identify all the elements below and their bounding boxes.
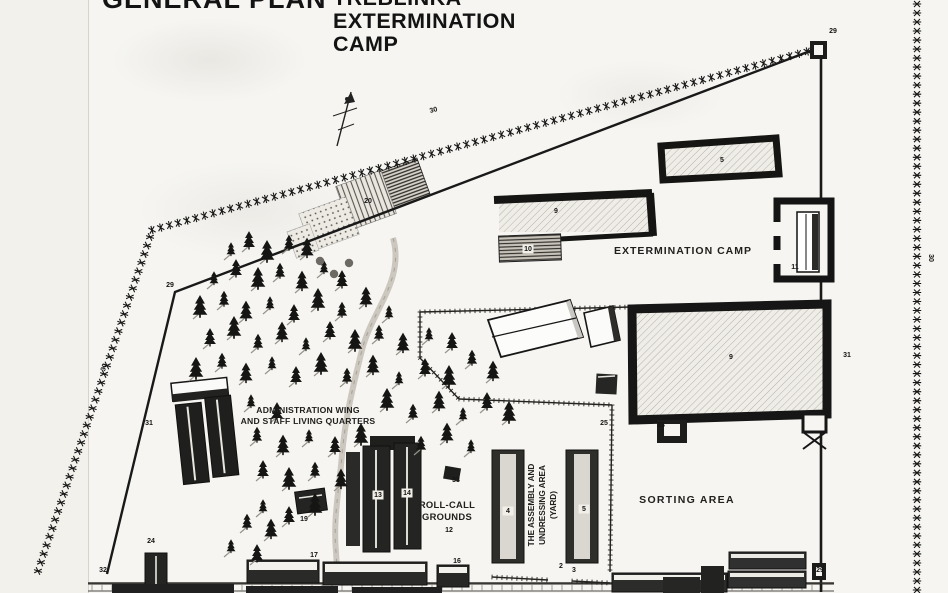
tree-shadow <box>406 417 413 423</box>
fence-barb-icon <box>913 515 921 521</box>
page-title-general-plan: GENERAL PLAN <box>102 0 327 15</box>
fence-barb-icon <box>489 132 497 142</box>
tree-icon <box>481 392 493 410</box>
tree-icon <box>264 519 277 540</box>
fence-barb-icon <box>913 488 921 494</box>
fence-barb-icon <box>79 430 89 438</box>
tree-icon <box>486 361 499 382</box>
platform-building <box>246 586 338 593</box>
fence-barb-icon <box>913 290 921 296</box>
fence-barb-icon <box>913 109 921 115</box>
fence-barb-icon <box>428 149 436 159</box>
fence-barb-icon <box>913 587 921 593</box>
tree-icon <box>239 301 252 322</box>
tree-icon <box>380 388 395 411</box>
tree-shadow <box>456 419 463 425</box>
fence-barb-icon <box>913 569 921 575</box>
map-number-label: 31 <box>145 420 153 427</box>
building-9-wall <box>560 234 653 239</box>
building-11-notch <box>770 250 782 264</box>
fence-barb-icon <box>913 578 921 584</box>
enclosure-gate-opening <box>664 424 680 436</box>
tree-icon <box>442 365 457 388</box>
fence-barb-icon <box>332 175 340 185</box>
fence-barb-icon <box>690 77 698 87</box>
fence-barb-icon <box>646 89 654 99</box>
fence-barb-icon <box>288 187 296 197</box>
tree-icon <box>242 514 252 530</box>
internal-fence <box>492 577 548 580</box>
fence-barb-icon <box>585 106 593 116</box>
tree-shadow <box>308 475 315 481</box>
fence-barb-icon <box>913 425 921 431</box>
map-number-label: 25 <box>600 420 608 427</box>
camp-map: EXTERMINATION CAMPADMINISTRATION WINGAND… <box>0 0 948 593</box>
fence-barb-icon <box>913 118 921 124</box>
fence-barb-icon <box>742 63 750 73</box>
fence-barb-icon <box>53 507 63 515</box>
tree-shadow <box>224 551 231 557</box>
fence-barb-icon <box>524 123 532 133</box>
fence-barb-icon <box>913 371 921 377</box>
tree-icon <box>282 467 297 490</box>
fence-barb-icon <box>913 100 921 106</box>
fence-barb-icon <box>913 163 921 169</box>
tree-icon <box>334 469 347 490</box>
tree-icon <box>408 404 418 420</box>
fence-barb-icon <box>183 216 191 226</box>
fence-barb-icon <box>913 235 921 241</box>
platform-building <box>663 577 700 593</box>
fence-barb-icon <box>637 92 645 102</box>
area-label-yard: (YARD) <box>549 491 558 519</box>
fence-barb-icon <box>913 244 921 250</box>
tree-icon <box>275 263 285 279</box>
map-number-label: 30 <box>100 363 109 373</box>
fence-barb-icon <box>913 542 921 548</box>
tree-icon <box>251 544 263 562</box>
tree-icon <box>329 436 341 454</box>
fence-barb-icon <box>664 85 672 95</box>
fence-barb-icon <box>620 97 628 107</box>
map-number-label: 3 <box>572 567 576 574</box>
fence-barb-icon <box>725 68 733 78</box>
fence-barb-icon <box>480 135 488 145</box>
north-arrow-icon <box>345 97 349 101</box>
tree-icon <box>366 355 379 376</box>
fence-barb-icon <box>498 130 506 140</box>
area-label-sorting-area: SORTING AREA <box>639 494 735 506</box>
fence-barb-icon <box>56 498 66 506</box>
fence-barb-icon <box>262 194 270 204</box>
fence-barb-icon <box>209 208 217 218</box>
fence-barb-icon <box>913 308 921 314</box>
tree-icon <box>324 321 336 339</box>
fence-barb-icon <box>515 125 523 135</box>
fence-barb-icon <box>913 506 921 512</box>
fence-barb-icon <box>111 336 121 344</box>
map-number-label: 20 <box>364 198 372 205</box>
tree-shadow <box>302 441 309 447</box>
area-label-roll-call: ROLL-CALL <box>419 499 475 510</box>
tree-icon <box>311 288 326 311</box>
fence-barb-icon <box>200 211 208 221</box>
fence-barb-icon <box>913 145 921 151</box>
tree-icon <box>283 506 295 524</box>
fence-barb-icon <box>119 310 129 318</box>
fence-barb-icon <box>913 190 921 196</box>
tree-icon <box>348 329 363 352</box>
fence-barb-icon <box>913 362 921 368</box>
tree-shadow <box>317 272 324 278</box>
fence-barb-icon <box>125 293 135 301</box>
tree-shadow <box>217 304 224 310</box>
fence-barb-icon <box>139 250 149 258</box>
fence-barb-icon <box>913 398 921 404</box>
tree-icon <box>305 429 314 443</box>
platform-building <box>701 566 724 593</box>
long-barrack-17-roof <box>325 564 425 572</box>
map-number-label: 11 <box>791 264 799 271</box>
tree-shadow <box>256 511 263 517</box>
map-number-label: 29 <box>166 282 174 289</box>
bush-icon <box>316 257 324 265</box>
tree-shadow <box>464 451 471 457</box>
fence-barb-icon <box>297 185 305 195</box>
fence-barb-icon <box>45 532 55 540</box>
tree-icon <box>189 357 204 380</box>
fence-barb-icon <box>913 82 921 88</box>
map-number-label: 32 <box>99 567 107 574</box>
fence-barb-icon <box>751 61 759 71</box>
tree-shadow <box>251 347 258 353</box>
building-11-notch <box>770 222 782 236</box>
map-number-label: 19 <box>300 516 308 523</box>
fence-barb-icon <box>532 120 540 130</box>
map-number-label: 9 <box>729 354 733 361</box>
small-hut-ridge <box>598 376 615 377</box>
tree-icon <box>467 439 476 453</box>
north-arrow-icon <box>338 124 354 130</box>
fence-barb-icon <box>913 181 921 187</box>
fence-barb-icon <box>142 241 152 249</box>
fence-barb-icon <box>913 253 921 259</box>
area-label-extermination-camp: EXTERMINATION CAMP <box>614 245 752 257</box>
fence-barb-icon <box>550 116 558 126</box>
fence-barb-icon <box>913 136 921 142</box>
fence-barb-icon <box>913 55 921 61</box>
storage-barrack-roof <box>730 573 804 577</box>
tree-shadow <box>382 317 389 323</box>
fence-barb-icon <box>576 108 584 118</box>
map-number-label: 5 <box>720 157 724 164</box>
fence-barb-icon <box>76 438 86 446</box>
fence-barb-icon <box>913 326 921 332</box>
fence-barb-icon <box>463 139 471 149</box>
fence-barb-icon <box>270 192 278 202</box>
fence-barb-icon <box>913 560 921 566</box>
fence-barb-icon <box>913 199 921 205</box>
fence-barb-icon <box>419 151 427 161</box>
burial-pit-enclosure <box>632 304 827 420</box>
tree-shadow <box>215 366 222 372</box>
fence-barb-icon <box>47 524 57 532</box>
fence-barb-icon <box>68 464 78 472</box>
map-number-label: 4 <box>506 508 510 515</box>
fence-barb-icon <box>122 301 132 309</box>
map-number-label: 33 <box>657 422 665 429</box>
area-label-undressing-area: UNDRESSING AREA <box>538 465 547 545</box>
fence-barb-icon <box>192 213 200 223</box>
tree-shadow <box>340 381 347 387</box>
map-number-label: 29 <box>829 28 837 35</box>
tree-icon <box>385 305 394 319</box>
tree-shadow <box>335 315 342 321</box>
fence-barb-icon <box>62 481 72 489</box>
tree-icon <box>310 462 320 478</box>
fence-barb-icon <box>611 99 619 109</box>
fence-barb-icon <box>602 101 610 111</box>
building-16-roof <box>439 567 467 573</box>
tree-icon <box>359 287 372 308</box>
watchtower-icon <box>803 414 826 432</box>
tree-icon <box>253 334 263 350</box>
tree-icon <box>259 499 268 513</box>
building-11-shade <box>812 214 818 270</box>
map-number-label: 13 <box>374 492 382 499</box>
tree-icon <box>342 368 352 384</box>
area-label-grounds: GROUNDS <box>422 511 472 522</box>
fence-barb-icon <box>253 197 261 207</box>
fence-barb-icon <box>655 87 663 97</box>
treblinka-camp-plan-page: EXTERMINATION CAMPADMINISTRATION WINGAND… <box>0 0 948 593</box>
tree-icon <box>227 316 242 339</box>
fence-barb-icon <box>157 223 165 233</box>
fence-barb-icon <box>59 490 69 498</box>
fence-barb-icon <box>65 473 75 481</box>
fence-barb-icon <box>913 389 921 395</box>
fence-barb-icon <box>116 318 126 326</box>
tree-shadow <box>240 527 247 533</box>
fence-barb-icon <box>913 335 921 341</box>
fence-barb-icon <box>913 73 921 79</box>
tree-icon <box>337 302 347 318</box>
fence-barb-icon <box>913 10 921 16</box>
map-number-label: 33 <box>452 477 460 484</box>
fence-barb-icon <box>454 142 462 152</box>
fence-barb-icon <box>131 276 141 284</box>
map-number-label: 31 <box>843 352 851 359</box>
fence-barb-icon <box>235 201 243 211</box>
tree-icon <box>260 240 275 263</box>
fence-barb-icon <box>913 217 921 223</box>
tree-icon <box>247 394 256 408</box>
map-number-label: 30 <box>429 106 438 115</box>
tree-icon <box>268 356 277 370</box>
tree-shadow <box>224 254 231 260</box>
fence-barb-icon <box>913 37 921 43</box>
page-title-camp-name: TREBLINKA EXTERMINATION CAMP <box>333 0 516 56</box>
fence-barb-icon <box>82 421 92 429</box>
fence-barb-icon <box>85 413 95 421</box>
tree-icon <box>302 337 311 351</box>
tree-shadow <box>422 339 429 345</box>
fence-barb-icon <box>340 173 348 183</box>
tree-icon <box>251 267 266 290</box>
admin-barracks-group <box>171 377 239 485</box>
fence-barb-icon <box>681 80 689 90</box>
fence-barb-icon <box>39 550 49 558</box>
fence-barb-icon <box>90 395 100 403</box>
fence-barb-icon <box>33 567 43 575</box>
tree-icon <box>239 363 252 384</box>
fence-barb-icon <box>913 551 921 557</box>
fence-barb-icon <box>913 1 921 7</box>
fence-barb-icon <box>541 118 549 128</box>
platform-building <box>112 584 234 593</box>
fence-barb-icon <box>913 452 921 458</box>
storage-barrack-roof <box>731 554 804 558</box>
tree-shadow <box>299 349 306 355</box>
map-number-label: 16 <box>453 558 461 565</box>
fence-barb-icon <box>913 281 921 287</box>
map-number-label: 12 <box>445 527 453 534</box>
area-label-administration-wing: ADMINISTRATION WING <box>256 405 360 415</box>
fence-barb-icon <box>716 70 724 80</box>
fence-barb-icon <box>36 558 46 566</box>
tree-icon <box>204 328 216 346</box>
tree-shadow <box>244 406 251 412</box>
fence-barb-icon <box>105 353 115 361</box>
map-number-label: 9 <box>554 208 558 215</box>
watchtower-window <box>814 45 823 55</box>
tree-shadow <box>265 368 272 374</box>
fence-barb-icon <box>218 206 226 216</box>
fence-barb-icon <box>913 497 921 503</box>
bush-icon <box>345 259 353 267</box>
fence-barb-icon <box>134 267 144 275</box>
tree-icon <box>252 427 262 443</box>
fence-barb-icon <box>244 199 252 209</box>
fence-barb-icon <box>733 66 741 76</box>
tree-icon <box>288 304 300 322</box>
tree-icon <box>243 231 255 249</box>
fence-barb-icon <box>145 233 155 241</box>
map-number-label: 29 <box>816 567 824 574</box>
fence-barb-icon <box>629 94 637 104</box>
fence-barb-icon <box>913 479 921 485</box>
fence-barb-icon <box>166 220 174 230</box>
fence-barb-icon <box>471 137 479 147</box>
fence-barb-icon <box>108 344 118 352</box>
fence-barb-icon <box>314 180 322 190</box>
tree-icon <box>227 242 236 256</box>
fence-barb-icon <box>174 218 182 228</box>
tree-icon <box>440 423 453 444</box>
building-9-wall <box>650 193 653 236</box>
fence-barb-icon <box>73 447 83 455</box>
tree-icon <box>295 271 308 292</box>
fence-barb-icon <box>913 317 921 323</box>
fence-barb-icon <box>913 208 921 214</box>
map-number-label: 10 <box>524 246 532 253</box>
fence-barb-icon <box>305 182 313 192</box>
fence-barb-icon <box>445 144 453 154</box>
tree-shadow <box>392 383 399 389</box>
fence-barb-icon <box>698 75 706 85</box>
platform-building <box>352 587 442 593</box>
fence-barb-icon <box>559 113 567 123</box>
fence-barb-icon <box>567 111 575 121</box>
tree-shadow <box>372 338 379 344</box>
fence-barb-icon <box>913 19 921 25</box>
fence-barb-icon <box>128 284 138 292</box>
tree-icon <box>257 460 269 478</box>
fence-barb-icon <box>913 46 921 52</box>
tree-shadow <box>250 440 257 446</box>
fence-barb-icon <box>707 73 715 83</box>
tree-icon <box>276 435 289 456</box>
tree-icon <box>219 291 229 307</box>
fence-barb-icon <box>913 407 921 413</box>
tree-shadow <box>465 363 472 369</box>
fence-barb-icon <box>913 91 921 97</box>
tree-icon <box>217 353 227 369</box>
tree-icon <box>432 391 445 412</box>
fence-barb-icon <box>913 272 921 278</box>
long-barrack-17-roof <box>249 562 317 570</box>
fence-barb-icon <box>279 189 287 199</box>
tree-icon <box>227 539 236 553</box>
fence-barb-icon <box>913 127 921 133</box>
fence-barb-icon <box>594 104 602 114</box>
fence-barb-icon <box>913 353 921 359</box>
fence-barb-icon <box>50 515 60 523</box>
fence-barb-icon <box>913 172 921 178</box>
fence-barb-icon <box>913 154 921 160</box>
tree-icon <box>314 352 329 375</box>
area-label-and-staff-living-quarters: AND STAFF LIVING QUARTERS <box>241 416 376 426</box>
tree-icon <box>266 296 275 310</box>
tree-icon <box>425 327 434 341</box>
fence-barb-icon <box>349 170 357 180</box>
tree-icon <box>193 295 208 318</box>
tree-icon <box>502 401 517 424</box>
tree-icon <box>446 332 458 350</box>
fence-barb-icon <box>227 204 235 214</box>
fence-barb-icon <box>913 28 921 34</box>
fence-barb-icon <box>96 378 106 386</box>
tree-icon <box>467 350 477 366</box>
tree-shadow <box>207 283 214 289</box>
map-number-label: 17 <box>310 552 318 559</box>
map-number-label: 14 <box>403 490 411 497</box>
map-number-label: 5 <box>582 506 586 513</box>
bush-icon <box>330 270 338 278</box>
fence-barb-icon <box>913 434 921 440</box>
map-number-label: 2 <box>559 563 563 570</box>
area-label-the-assembly-and: THE ASSEMBLY AND <box>527 464 536 547</box>
fence-barb-icon <box>672 82 680 92</box>
fence-barb-icon <box>913 299 921 305</box>
map-number-label: 30 <box>927 254 934 262</box>
fence-barb-icon <box>913 443 921 449</box>
tree-icon <box>459 407 468 421</box>
map-number-label: 24 <box>147 538 155 545</box>
fence-barb-icon <box>323 178 331 188</box>
fence-barb-icon <box>93 387 103 395</box>
fence-barb-icon <box>113 327 123 335</box>
